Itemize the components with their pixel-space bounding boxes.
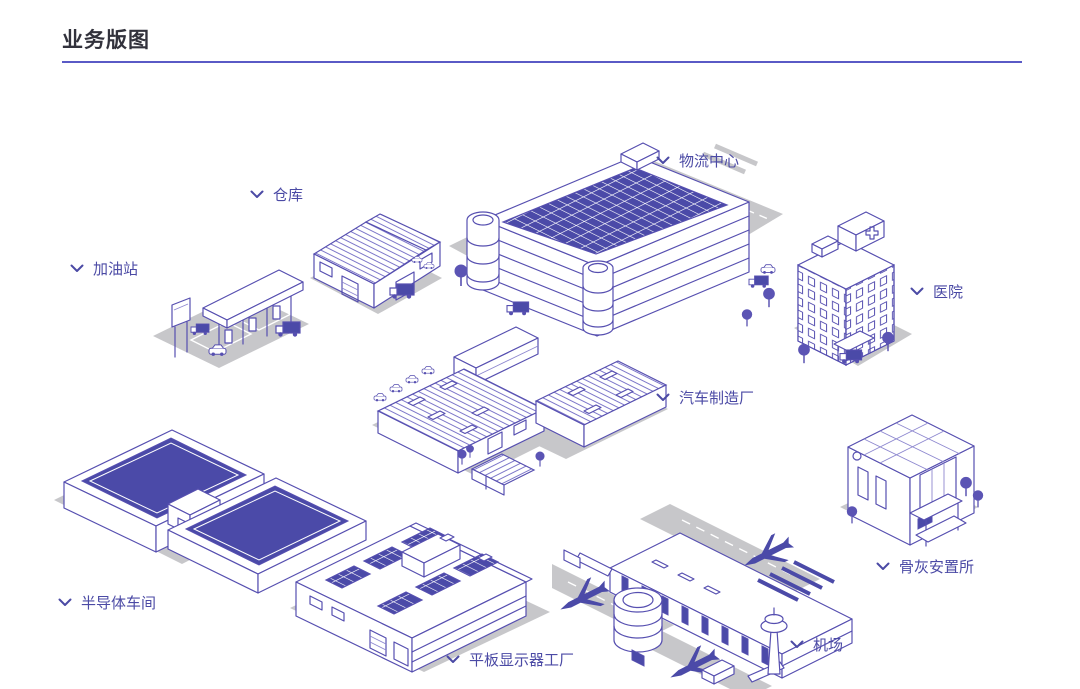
page-title: 业务版图 — [62, 24, 150, 54]
site-label-gas-station[interactable]: 加油站 — [70, 258, 138, 279]
site-label-text: 汽车制造厂 — [679, 387, 754, 408]
chevron-down-icon — [910, 287, 924, 296]
illustration-hospital — [782, 208, 917, 378]
chevron-down-icon — [70, 264, 84, 273]
title-divider — [62, 61, 1022, 63]
chevron-down-icon — [656, 393, 670, 402]
chevron-down-icon — [876, 562, 890, 571]
site-label-text: 仓库 — [273, 184, 303, 205]
site-label-hospital[interactable]: 医院 — [910, 281, 963, 302]
site-label-columbarium[interactable]: 骨灰安置所 — [876, 556, 974, 577]
chevron-down-icon — [446, 655, 460, 664]
site-label-text: 加油站 — [93, 258, 138, 279]
site-label-airport[interactable]: 机场 — [790, 634, 843, 655]
site-label-auto-factory[interactable]: 汽车制造厂 — [656, 387, 754, 408]
site-label-text: 机场 — [813, 634, 843, 655]
chevron-down-icon — [656, 156, 670, 165]
illustration-gas-station — [95, 262, 320, 380]
site-label-text: 物流中心 — [679, 150, 739, 171]
site-label-warehouse[interactable]: 仓库 — [250, 184, 303, 205]
illustration-flat-panel-factory — [282, 482, 557, 672]
site-label-text: 医院 — [933, 281, 963, 302]
site-label-logistics-center[interactable]: 物流中心 — [656, 150, 739, 171]
chevron-down-icon — [58, 598, 72, 607]
site-label-text: 平板显示器工厂 — [469, 649, 574, 670]
site-label-text: 骨灰安置所 — [899, 556, 974, 577]
site-label-flat-panel-factory[interactable]: 平板显示器工厂 — [446, 649, 574, 670]
site-label-semiconductor-workshop[interactable]: 半导体车间 — [58, 592, 156, 613]
chevron-down-icon — [250, 190, 264, 199]
chevron-down-icon — [790, 640, 804, 649]
site-label-text: 半导体车间 — [81, 592, 156, 613]
